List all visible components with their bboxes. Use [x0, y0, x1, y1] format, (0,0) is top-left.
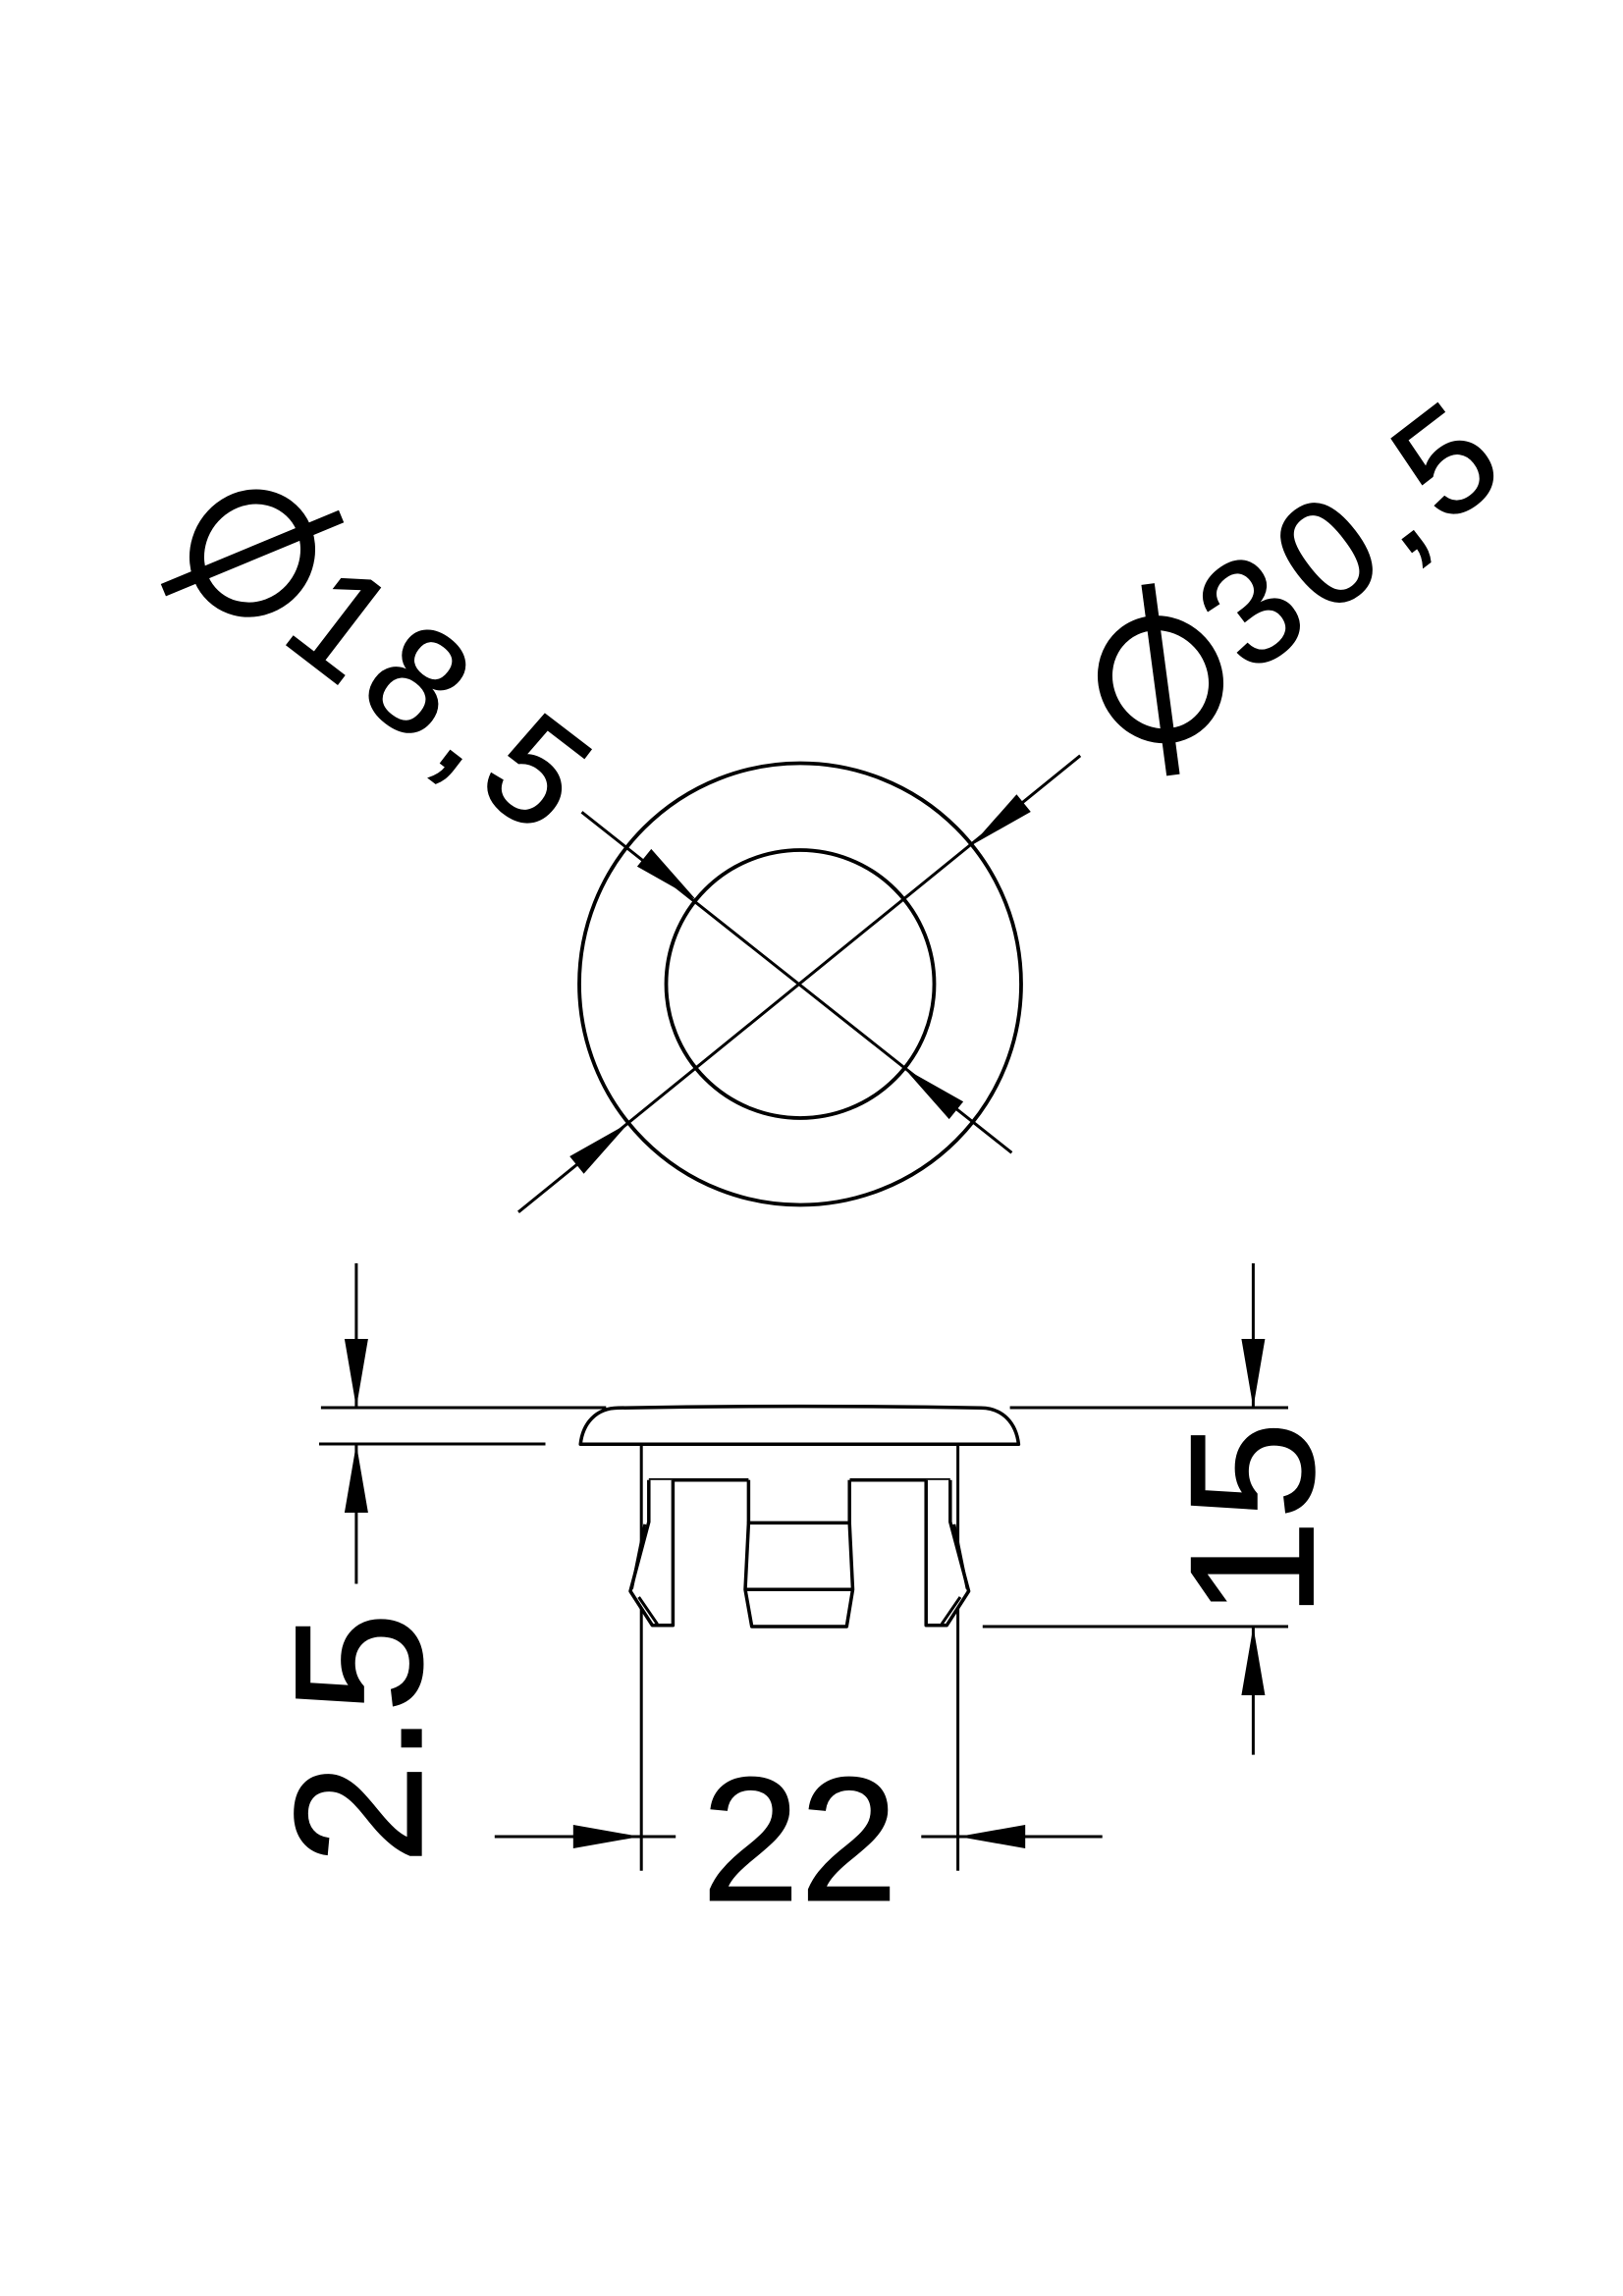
- svg-text:22: 22: [701, 1741, 897, 1939]
- svg-text:2.5: 2.5: [258, 1612, 460, 1864]
- svg-text:15: 15: [1154, 1421, 1351, 1618]
